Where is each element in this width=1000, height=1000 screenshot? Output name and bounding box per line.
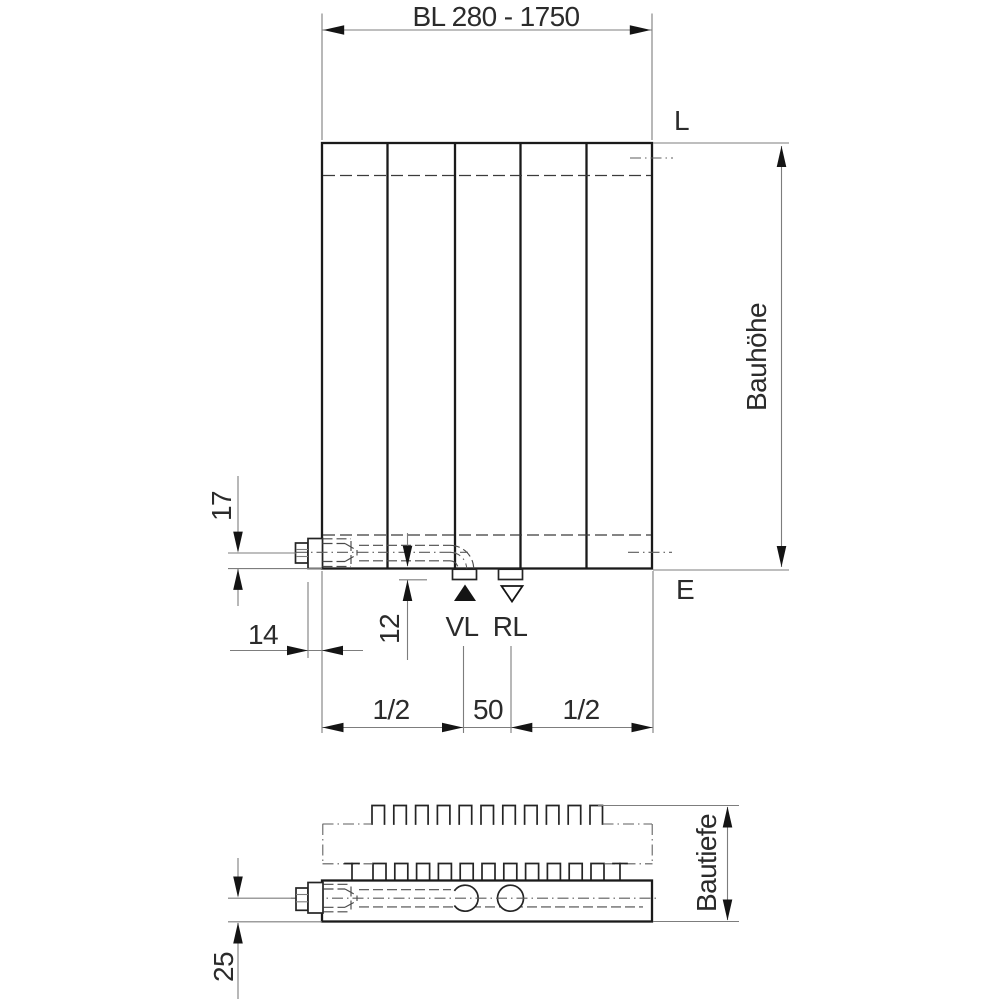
- supply-triangle-icon: [454, 585, 476, 602]
- dimension-17: 17: [206, 476, 322, 606]
- top-section-view: [291, 806, 657, 922]
- dim-17-label: 17: [206, 491, 237, 521]
- supply-return-markers: VL RL: [445, 585, 527, 643]
- return-triangle-icon: [502, 586, 523, 602]
- depth-dimension-label: Bautiefe: [691, 814, 722, 912]
- supply-label: VL: [445, 611, 478, 642]
- vent-connection-label: L: [674, 105, 689, 136]
- dimension-25: 25: [208, 858, 322, 999]
- drain-connection-label: E: [676, 574, 694, 605]
- length-dimension-label: BL 280 - 1750: [412, 1, 579, 32]
- dim-50-label: 50: [473, 694, 503, 725]
- return-label: RL: [493, 611, 528, 642]
- height-dimension-label: Bauhöhe: [741, 303, 772, 411]
- dimension-height-bauhoehe: Bauhöhe: [653, 143, 789, 570]
- radiator-technical-drawing: BL 280 - 1750 Bauhöhe 17 14 12 VL RL: [0, 0, 1000, 1000]
- dim-half-left-label: 1/2: [372, 694, 409, 725]
- dim-14-label: 14: [248, 619, 278, 650]
- connection-stubs: [453, 569, 523, 579]
- convector-fins-upper: [372, 806, 603, 825]
- dimension-bottom-chain: 1/2 50 1/2: [322, 571, 653, 733]
- front-view: [322, 143, 673, 569]
- convector-fins-lower: [373, 864, 604, 881]
- dim-25-label: 25: [208, 952, 239, 982]
- dimension-length-BL: BL 280 - 1750: [322, 1, 652, 140]
- dim-half-right-label: 1/2: [562, 694, 599, 725]
- radiator-technical-drawing-page: BL 280 - 1750 Bauhöhe 17 14 12 VL RL: [0, 0, 1000, 1000]
- dim-12-label: 12: [374, 614, 405, 644]
